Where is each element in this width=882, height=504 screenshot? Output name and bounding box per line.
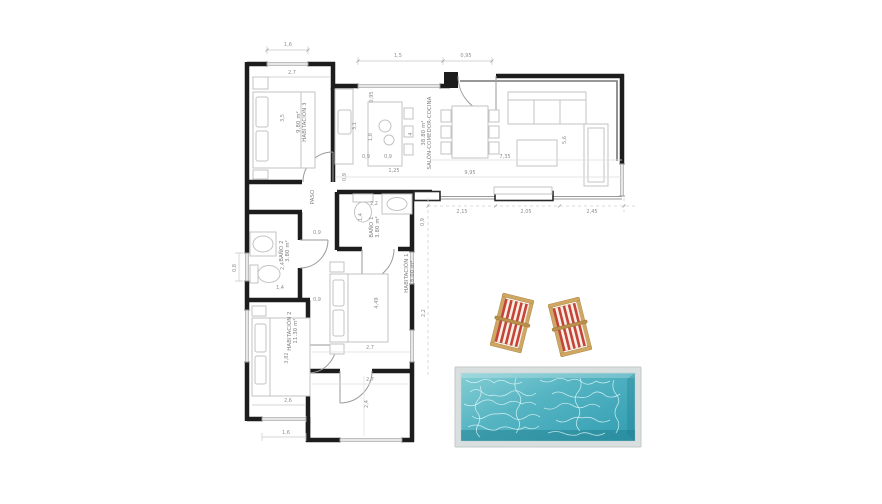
floor-plan-page: 1,6 1,5 0,95 2,7 3,5 3,1 1,8 0,95 0,9 0,… [0, 0, 882, 504]
kitchen-counter [335, 89, 353, 164]
dim-label: 2,45 [586, 209, 597, 215]
dim-label: 2,4 [280, 262, 286, 270]
dim-label: 2,15 [456, 209, 467, 215]
window-kitchen-top [358, 83, 440, 89]
room-label-paso: PASO [310, 190, 316, 205]
swimming-pool [455, 367, 641, 447]
nightstand [253, 170, 268, 179]
entry-pillar [444, 72, 458, 88]
nightstand [330, 344, 344, 354]
dim-label: 4,49 [374, 297, 380, 308]
sink-bano1 [382, 194, 412, 214]
window-hab2-left [244, 310, 250, 362]
nightstand [252, 306, 266, 316]
window-bano2-left [244, 253, 250, 281]
dim-label: 3,5 [280, 114, 286, 122]
dim-label: 0,9 [342, 173, 348, 181]
svg-text:BAÑO 1: BAÑO 1 [368, 216, 375, 237]
toilet-bano2 [250, 265, 280, 283]
deck-chair-left [488, 292, 536, 353]
dim-label: 1,8 [368, 133, 374, 141]
dim-label: 2,05 [520, 209, 531, 215]
svg-text:18.00 m²: 18.00 m² [409, 260, 416, 285]
window-salon-right [619, 164, 625, 196]
window-hab1-right-b [409, 330, 415, 362]
tv-bench [494, 187, 552, 194]
dim-label: 0,9 [313, 297, 321, 303]
deck-chair-right [546, 296, 594, 357]
room-label-salon: SALÓN-COMEDOR-COCINA 38.80 m² [420, 96, 433, 169]
svg-text:BAÑO 2: BAÑO 2 [278, 240, 285, 261]
dim-label: 2,2 [370, 201, 378, 207]
dim-label: 3,82 [284, 352, 290, 363]
svg-text:HABITACIÓN 2: HABITACIÓN 2 [286, 311, 293, 350]
room-label-bano2: BAÑO 2 3.80 m² [278, 240, 291, 262]
dim-label: 1,5 [394, 53, 402, 59]
deck-chairs [488, 292, 594, 357]
door-bano2 [300, 240, 328, 268]
dim-label: 0,8 [232, 264, 238, 272]
dim-label: 5,6 [562, 136, 568, 144]
dim-label: 2,7 [366, 345, 374, 351]
svg-text:PASO: PASO [310, 190, 316, 205]
dim-label: 2,7 [366, 377, 374, 383]
window-extension-bottom [340, 437, 402, 443]
dim-label: 0,9 [420, 218, 426, 226]
dim-label: 1,6 [284, 42, 292, 48]
svg-text:3.80 m²: 3.80 m² [284, 240, 291, 262]
sink-bano2 [250, 232, 276, 256]
stool [404, 108, 413, 119]
door-extension [340, 371, 372, 403]
dim-label: 1,4 [358, 213, 364, 221]
coffee-table [517, 140, 557, 166]
sofa-main [508, 92, 586, 124]
dim-label: 0,9 [362, 154, 370, 160]
sliding-door-panel-left [414, 192, 440, 201]
dim-label: 0,95 [369, 91, 375, 102]
dim-label: 0,95 [460, 53, 471, 59]
stool [404, 144, 413, 155]
pool-deep-end-shadow [461, 430, 635, 441]
dim-label: 4 [408, 132, 414, 135]
dim-label: 1,25 [388, 168, 399, 174]
dim-label: 3,1 [352, 122, 358, 130]
dining-table [441, 106, 499, 158]
nightstand [330, 262, 344, 272]
dim-label: 0,9 [313, 230, 321, 236]
dim-label: 2,6 [284, 398, 292, 404]
svg-text:HABITACIÓN 1: HABITACIÓN 1 [403, 253, 410, 292]
dim-label: 2,7 [288, 70, 296, 76]
dim-label: 1,6 [282, 430, 290, 436]
svg-text:38.80 m²: 38.80 m² [420, 120, 427, 145]
dim-label: 2,2 [421, 309, 427, 317]
dim-label: 9,95 [464, 170, 475, 176]
window-hab2-bottom [262, 416, 306, 422]
floor-plan-canvas: 1,6 1,5 0,95 2,7 3,5 3,1 1,8 0,95 0,9 0,… [0, 0, 882, 504]
svg-text:11.30 m²: 11.30 m² [292, 318, 299, 343]
bed-hab2 [252, 306, 310, 396]
nightstand [253, 77, 268, 89]
svg-text:9.80 m²: 9.80 m² [295, 111, 302, 133]
svg-text:SALÓN-COMEDOR-COCINA: SALÓN-COMEDOR-COCINA [426, 96, 433, 169]
window-hab3-top [267, 61, 308, 67]
dim-label: 7,35 [499, 154, 510, 160]
svg-text:3.80 m²: 3.80 m² [374, 216, 381, 238]
dim-label: 2,4 [364, 400, 370, 408]
dim-label: 1,4 [276, 285, 284, 291]
room-label-bano1: BAÑO 1 3.80 m² [368, 216, 381, 238]
dim-label: 0,9 [384, 154, 392, 160]
svg-text:HABITACIÓN 3: HABITACIÓN 3 [301, 102, 308, 141]
